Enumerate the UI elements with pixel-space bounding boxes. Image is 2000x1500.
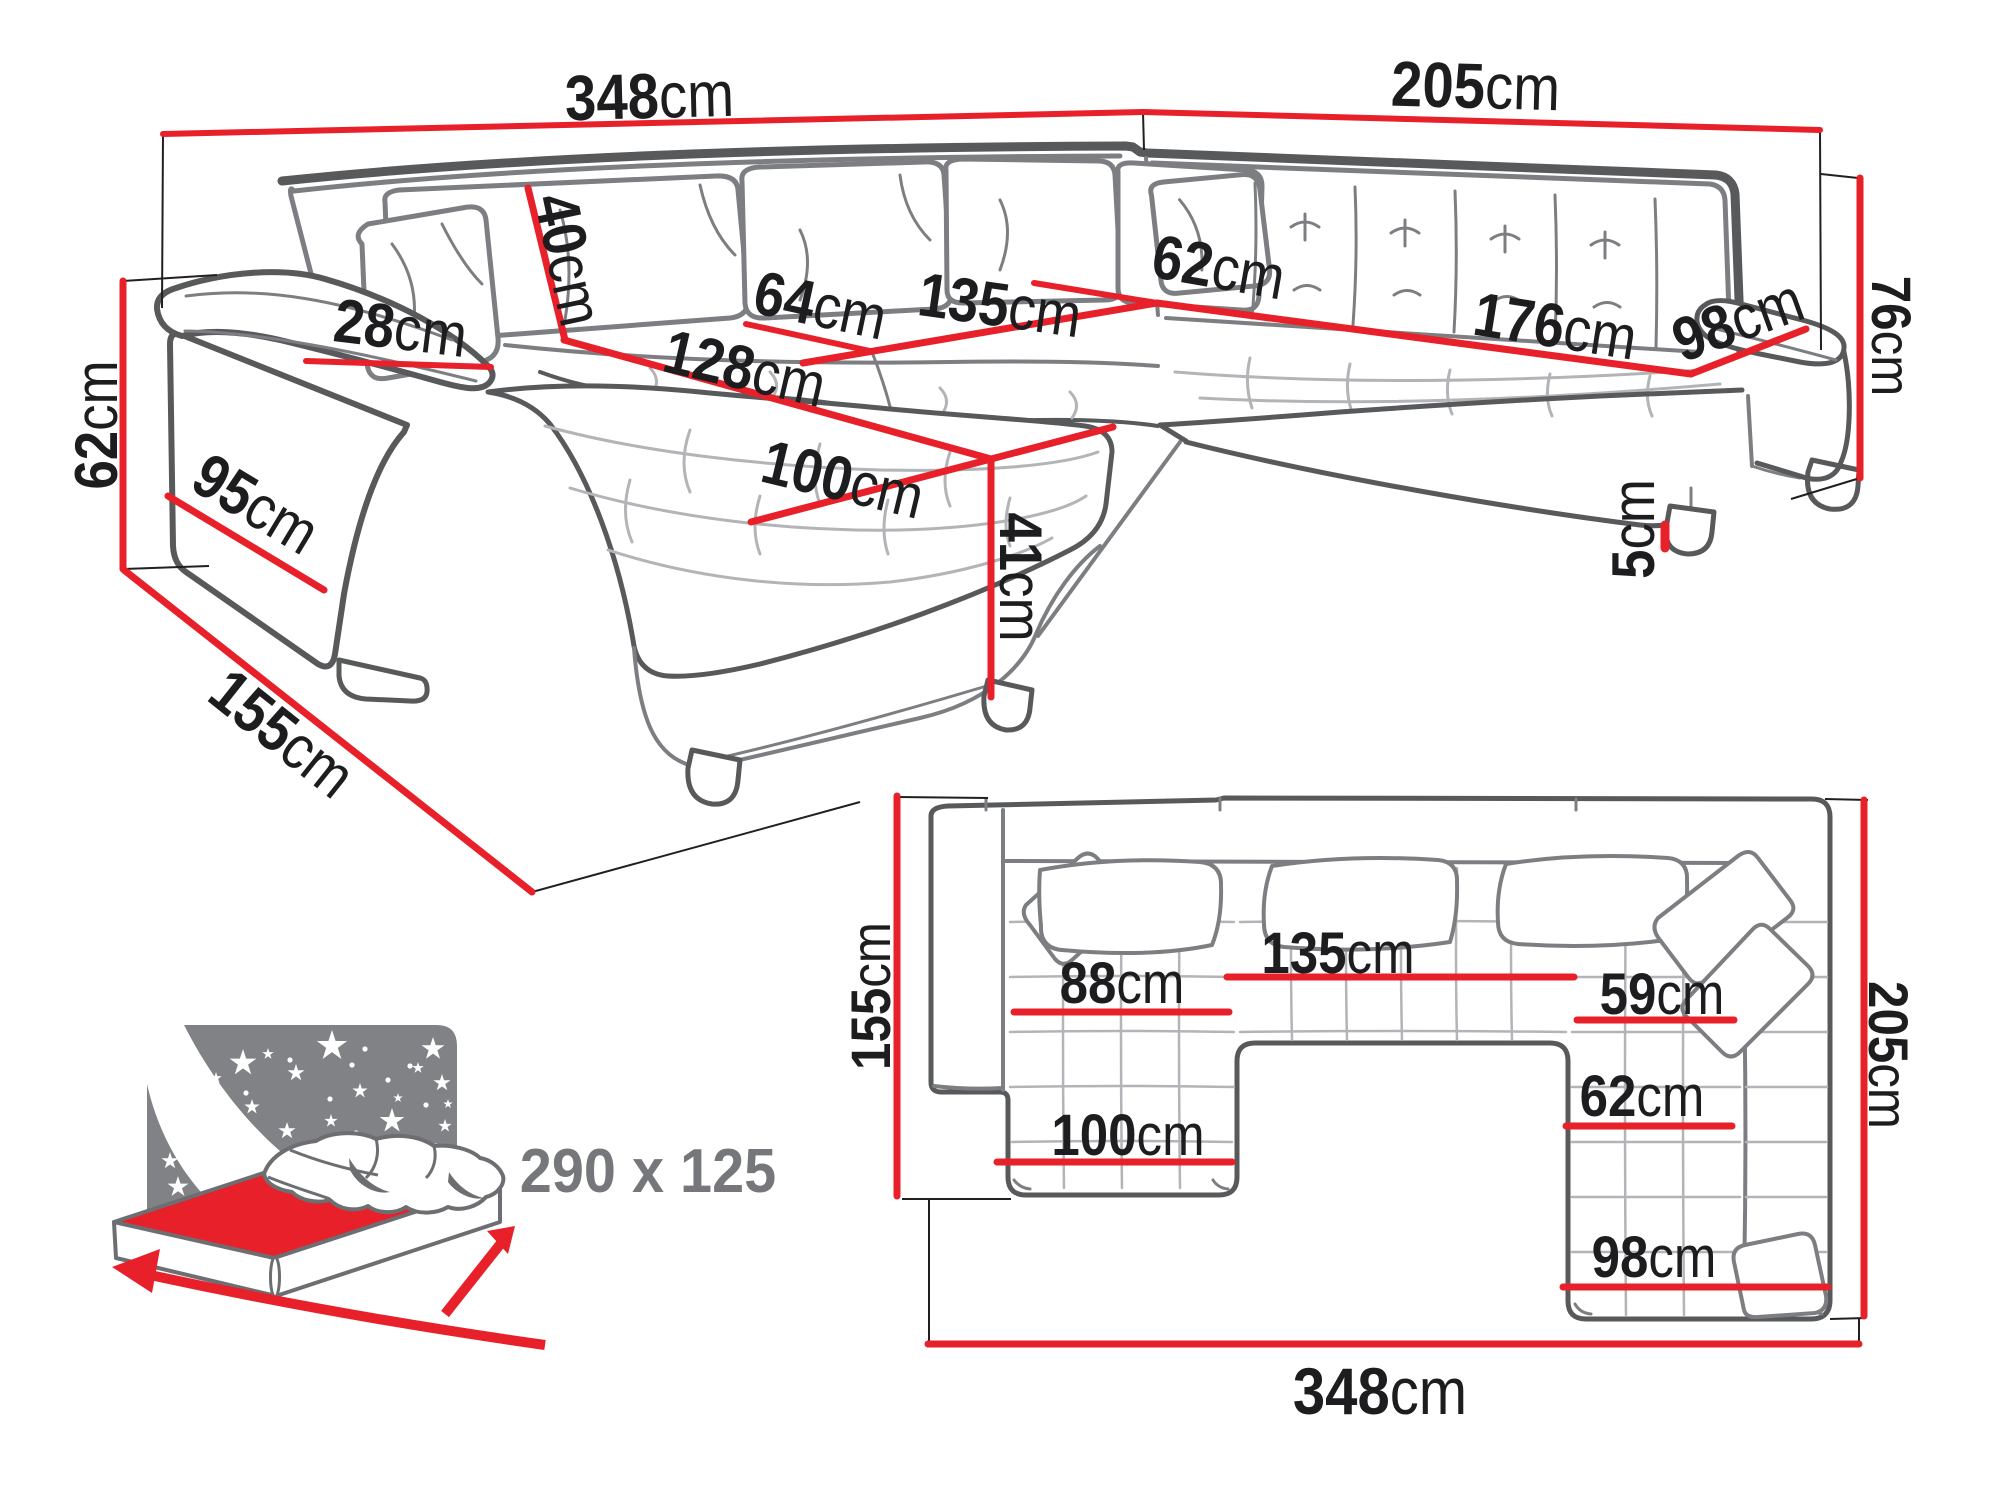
svg-text:155cm: 155cm — [840, 922, 903, 1070]
svg-text:205cm: 205cm — [1856, 981, 1919, 1129]
svg-text:348cm: 348cm — [564, 57, 735, 134]
svg-text:5cm: 5cm — [1600, 479, 1667, 579]
svg-text:41cm: 41cm — [987, 512, 1054, 641]
svg-text:100cm: 100cm — [1051, 1103, 1204, 1168]
svg-text:62cm: 62cm — [1580, 1064, 1705, 1129]
svg-text:76cm: 76cm — [1859, 276, 1922, 396]
svg-text:348cm: 348cm — [1293, 1356, 1467, 1429]
svg-text:205cm: 205cm — [1390, 47, 1561, 124]
svg-text:62cm: 62cm — [63, 360, 130, 489]
svg-text:59cm: 59cm — [1600, 962, 1725, 1027]
svg-text:290 x 125: 290 x 125 — [520, 1136, 776, 1205]
svg-text:98cm: 98cm — [1592, 1225, 1717, 1290]
svg-text:135cm: 135cm — [1261, 921, 1414, 986]
svg-text:88cm: 88cm — [1060, 951, 1185, 1016]
